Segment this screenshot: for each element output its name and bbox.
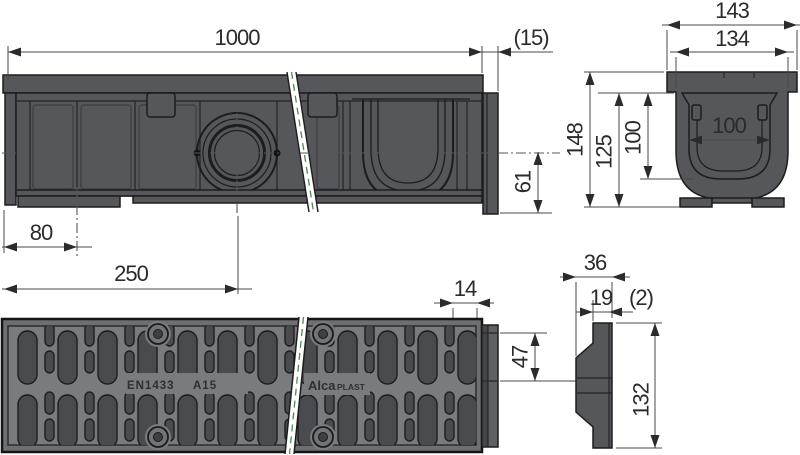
side-left-wall [5,93,16,205]
grate-load-class-marking: A15 [193,380,217,392]
grate-slot [405,419,414,441]
grate-slot [58,331,77,384]
grate-slot [205,419,214,441]
grate-end-strip [482,325,498,447]
grate-slot [58,395,77,448]
dim-overall-width: 143 [715,0,749,23]
grate-standard-marking: EN1433 [127,380,175,392]
grate-slot [205,351,214,373]
dim-inner-width: 100 [712,113,746,138]
grate-slot [245,392,254,414]
dim-outlet-height: 61 [511,170,536,193]
dim-cap-height: 132 [629,382,654,416]
grate-slot [325,392,334,414]
dim-overall-height: 148 [563,122,588,156]
grate-brand-logo: Alca [308,378,336,393]
grate-slot [258,395,277,448]
grate-slot [378,395,397,448]
side-body [16,93,482,196]
grate-slot [458,331,477,384]
grate-slot [405,392,414,414]
grate-slot [445,419,454,441]
grate-slot [125,351,134,373]
grate-slot [165,351,174,373]
grate-slot [405,351,414,373]
grate-slot [338,395,357,448]
dim-cap-width: 36 [584,250,607,275]
grate-slot [245,324,254,346]
grate-slot [125,324,134,346]
channel-side-view [2,72,560,258]
grate-slot [245,419,254,441]
grate-slot [85,419,94,441]
dim-length: 1000 [215,25,261,50]
grate-slot [445,324,454,346]
grate-slot [45,392,54,414]
grate-brand-logo-suffix: PLAST [337,382,366,392]
grate-slot [165,392,174,414]
grate-slot [85,324,94,346]
grate-slot [98,331,117,384]
dim-body-height: 125 [592,134,617,168]
drainage-channel-drawing: 1000 (15) 61 80 250 [0,0,800,455]
dim-edge-width: 14 [454,276,477,301]
grate-slot [445,392,454,414]
grate-slot [365,324,374,346]
grate-slot [378,331,397,384]
dim-edge-height: 47 [508,345,533,368]
grate-slot [458,395,477,448]
grate-slot [85,392,94,414]
end-cap-profile-view [576,323,612,448]
side-foot-left [18,196,120,207]
side-lock-tab-right [308,93,337,117]
grate-slot [245,351,254,373]
dim-outlet-offset: 250 [114,261,148,286]
section-foot-right [752,198,784,207]
grate-slot [85,351,94,373]
grate-slot [365,351,374,373]
grate-slot [18,395,37,448]
grate-slot [125,392,134,414]
side-lock-tab-left [147,93,175,117]
grate-slot [285,324,294,346]
grate-slot [18,331,37,384]
dim-support-offset: 80 [30,220,53,245]
grate-slot [218,395,237,448]
grate-slot [365,392,374,414]
grate-slot [258,331,277,384]
grate-slot [445,351,454,373]
dim-body-width: 134 [715,26,749,51]
end-cap-body [576,323,612,448]
dim-inner-depth: 100 [621,120,646,154]
side-bottom-lip [16,190,482,196]
grate-slot [205,324,214,346]
technical-drawing-page: 1000 (15) 61 80 250 [0,0,800,455]
grate-slot [45,324,54,346]
grate-slot [418,395,437,448]
grate-slot [365,419,374,441]
grate-slot [325,351,334,373]
grate-slot [125,419,134,441]
grate-slot [405,324,414,346]
grate-slot [45,351,54,373]
grate-slot [205,392,214,414]
grate-slot [45,419,54,441]
grate-plan-view: EN1433 A15 Alca PLAST [2,317,498,454]
section-foot-left [680,198,712,207]
side-top-rail [3,75,483,93]
dim-cap-overhang: (15) [513,25,548,50]
grate-slot [178,395,197,448]
grate-slot [98,395,117,448]
grate-slot [418,331,437,384]
dim-cap-lip: (2) [629,285,653,310]
dim-cap-rib-width: 19 [590,285,613,310]
grate-slot [285,351,294,373]
